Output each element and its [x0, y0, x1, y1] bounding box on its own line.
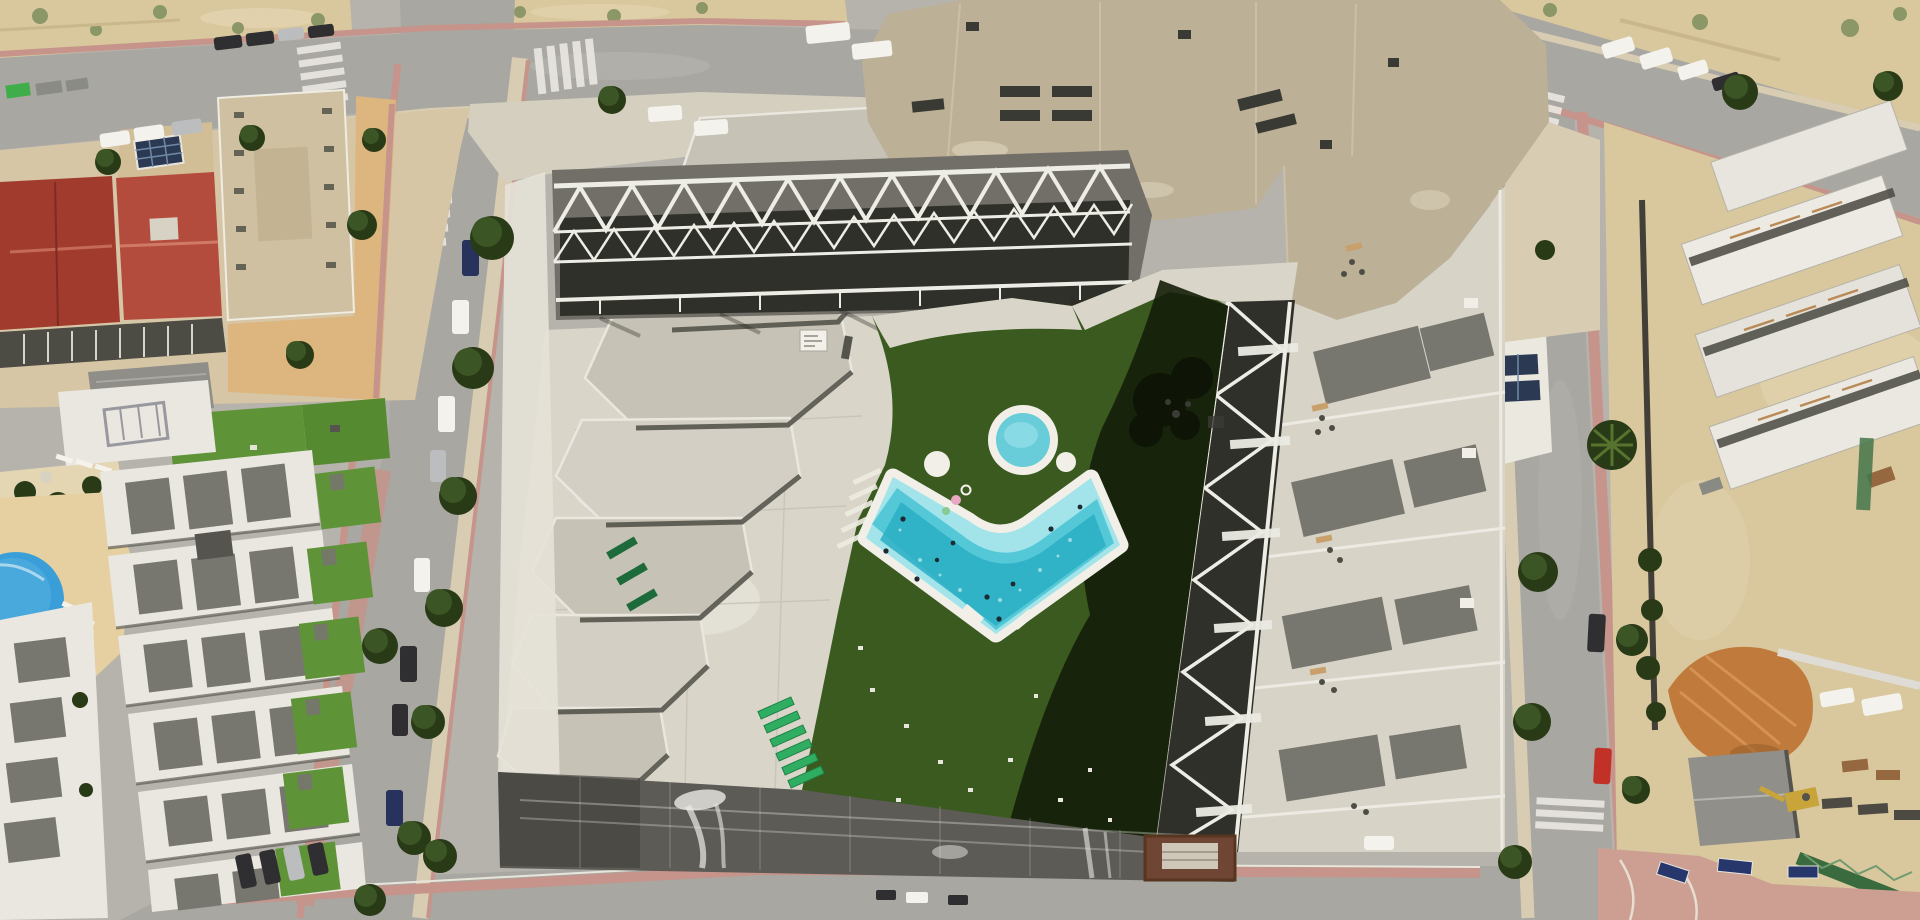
tree: [1616, 624, 1648, 656]
tree: [439, 477, 477, 515]
tree: [1622, 776, 1650, 804]
aerial-photo-stage: Top-down aerial photo of a new-build apa…: [0, 0, 1920, 920]
crosswalk-right-bottom: [1535, 797, 1605, 832]
stair-structure: [1145, 836, 1235, 880]
umbrella-base-right: [1056, 452, 1076, 472]
tree: [1873, 71, 1903, 101]
roof-terrace: [58, 380, 216, 466]
tree: [239, 125, 265, 151]
tree: [598, 86, 626, 114]
aerial-photo: [0, 0, 1920, 920]
tree: [423, 839, 457, 873]
tree: [95, 149, 121, 175]
umbrella-base-left: [924, 451, 950, 477]
tree: [1498, 845, 1532, 879]
tree-palm: [1587, 420, 1637, 470]
tree: [362, 628, 398, 664]
tree: [411, 705, 445, 739]
dark-shed: [195, 530, 234, 560]
tree: [347, 210, 377, 240]
tree: [1518, 552, 1558, 592]
tree: [362, 128, 386, 152]
tree: [470, 216, 514, 260]
tree: [1722, 74, 1758, 110]
tree: [286, 341, 314, 369]
tree: [1513, 703, 1551, 741]
tree: [354, 884, 386, 916]
tree: [452, 347, 494, 389]
kids-pool: [988, 405, 1058, 475]
van-at-building: [1364, 836, 1394, 850]
tree: [425, 589, 463, 627]
